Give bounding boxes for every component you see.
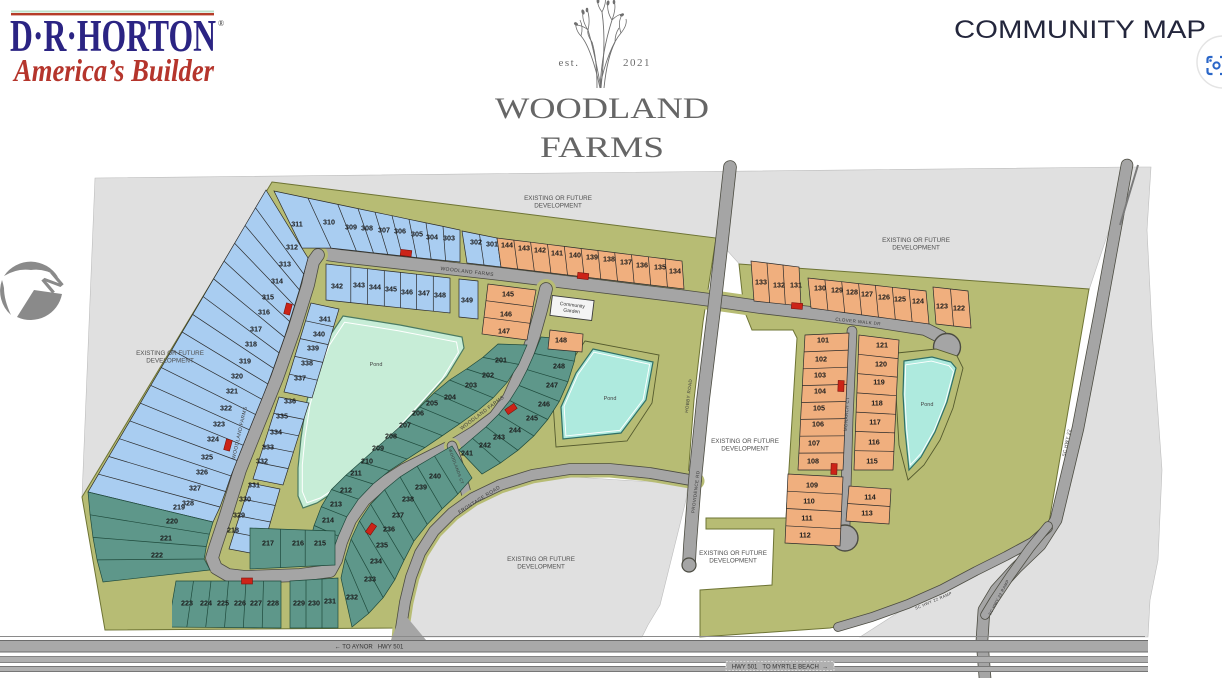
svg-text:330: 330	[239, 494, 251, 503]
svg-text:234: 234	[370, 556, 382, 565]
svg-text:224: 224	[200, 598, 212, 607]
svg-text:103: 103	[814, 370, 826, 379]
svg-text:147: 147	[498, 326, 510, 335]
svg-text:227: 227	[250, 598, 262, 607]
svg-text:118: 118	[871, 398, 883, 407]
svg-text:201: 201	[495, 355, 507, 364]
svg-text:110: 110	[803, 496, 815, 505]
svg-text:226: 226	[234, 598, 246, 607]
svg-text:136: 136	[636, 260, 648, 269]
svg-text:324: 324	[207, 434, 219, 443]
svg-text:225: 225	[217, 598, 229, 607]
svg-text:109: 109	[806, 480, 818, 489]
svg-text:244: 244	[509, 425, 521, 434]
svg-text:338: 338	[301, 358, 313, 367]
svg-text:125: 125	[894, 294, 906, 303]
svg-text:119: 119	[873, 377, 885, 386]
svg-text:242: 242	[479, 440, 491, 449]
svg-text:347: 347	[418, 288, 430, 297]
svg-text:336: 336	[284, 396, 296, 405]
svg-text:323: 323	[213, 419, 225, 428]
svg-text:333: 333	[262, 442, 274, 451]
svg-text:207: 207	[399, 420, 411, 429]
svg-text:220: 220	[166, 516, 178, 525]
svg-text:223: 223	[181, 598, 193, 607]
svg-text:317: 317	[250, 324, 262, 333]
svg-text:240: 240	[429, 471, 441, 480]
svg-text:107: 107	[808, 438, 820, 447]
svg-text:123: 123	[936, 301, 948, 310]
svg-text:329: 329	[233, 510, 245, 519]
svg-text:321: 321	[226, 386, 238, 395]
svg-text:326: 326	[196, 467, 208, 476]
svg-text:Pond: Pond	[604, 396, 617, 402]
svg-text:111: 111	[801, 513, 812, 522]
svg-text:HWY 501 TO MYRTLE BEACH →: HWY 501 TO MYRTLE BEACH →	[732, 665, 828, 671]
svg-text:America’s Builder: America’s Builder	[12, 52, 214, 88]
svg-text:203: 203	[465, 380, 477, 389]
svg-text:218: 218	[227, 525, 239, 534]
svg-text:108: 108	[807, 456, 819, 465]
svg-text:232: 232	[346, 592, 358, 601]
svg-text:146: 146	[500, 309, 512, 318]
svg-text:2021: 2021	[623, 57, 651, 69]
svg-text:245: 245	[526, 413, 538, 422]
svg-text:148: 148	[555, 335, 567, 344]
svg-text:131: 131	[790, 280, 802, 289]
svg-text:144: 144	[501, 240, 513, 249]
svg-text:345: 345	[385, 284, 397, 293]
svg-text:303: 303	[443, 233, 455, 242]
svg-text:®: ®	[218, 19, 224, 28]
svg-text:331: 331	[248, 480, 260, 489]
svg-text:230: 230	[308, 598, 320, 607]
svg-text:222: 222	[151, 550, 163, 559]
svg-text:134: 134	[669, 266, 681, 275]
svg-text:126: 126	[878, 292, 890, 301]
svg-text:EXISTING OR FUTUREDEVELOPMENT: EXISTING OR FUTUREDEVELOPMENT	[524, 195, 592, 210]
svg-text:138: 138	[603, 254, 615, 263]
svg-text:121: 121	[876, 340, 888, 349]
svg-text:113: 113	[861, 508, 873, 517]
svg-text:344: 344	[369, 282, 381, 291]
svg-text:129: 129	[831, 285, 843, 294]
svg-text:247: 247	[546, 380, 558, 389]
svg-text:239: 239	[415, 482, 427, 491]
svg-text:102: 102	[815, 354, 827, 363]
svg-text:309: 309	[345, 222, 357, 231]
svg-text:314: 314	[271, 276, 283, 285]
svg-text:120: 120	[875, 359, 887, 368]
svg-text:320: 320	[231, 371, 243, 380]
svg-text:124: 124	[912, 296, 924, 305]
svg-text:137: 137	[620, 257, 632, 266]
svg-text:310: 310	[323, 217, 335, 226]
svg-text:210: 210	[361, 456, 373, 465]
svg-text:EXISTING OR FUTUREDEVELOPMENT: EXISTING OR FUTUREDEVELOPMENT	[882, 237, 950, 252]
svg-text:141: 141	[551, 248, 563, 257]
svg-text:221: 221	[160, 533, 172, 542]
svg-text:311: 311	[291, 219, 303, 228]
svg-text:342: 342	[331, 281, 343, 290]
svg-text:202: 202	[482, 370, 494, 379]
svg-text:205: 205	[426, 398, 438, 407]
svg-text:335: 335	[276, 411, 288, 420]
svg-text:EXISTING OR FUTUREDEVELOPMENT: EXISTING OR FUTUREDEVELOPMENT	[711, 438, 779, 453]
svg-text:FARMS: FARMS	[540, 131, 664, 164]
svg-text:243: 243	[493, 432, 505, 441]
svg-text:313: 313	[279, 259, 291, 268]
svg-text:346: 346	[401, 287, 413, 296]
svg-text:104: 104	[814, 386, 826, 395]
svg-text:235: 235	[376, 540, 388, 549]
svg-text:116: 116	[868, 437, 880, 446]
svg-text:206: 206	[412, 408, 424, 417]
svg-text:319: 319	[239, 356, 251, 365]
svg-text:128: 128	[846, 287, 858, 296]
svg-text:106: 106	[812, 419, 824, 428]
svg-text:341: 341	[319, 314, 331, 323]
svg-text:325: 325	[201, 452, 213, 461]
svg-text:EXISTING OR FUTUREDEVELOPMENT: EXISTING OR FUTUREDEVELOPMENT	[699, 550, 767, 565]
svg-text:133: 133	[755, 277, 767, 286]
svg-text:101: 101	[817, 335, 829, 344]
svg-text:340: 340	[313, 329, 325, 338]
svg-text:238: 238	[402, 494, 414, 503]
svg-text:332: 332	[256, 456, 268, 465]
svg-text:est.: est.	[559, 57, 580, 69]
svg-text:EXISTING OR FUTUREDEVELOPMENT: EXISTING OR FUTUREDEVELOPMENT	[507, 556, 575, 571]
svg-text:EXISTING OR FUTUREDEVELOPMENT: EXISTING OR FUTUREDEVELOPMENT	[136, 350, 204, 365]
svg-text:112: 112	[799, 530, 811, 539]
svg-text:246: 246	[538, 399, 550, 408]
svg-text:115: 115	[866, 456, 878, 465]
svg-text:122: 122	[953, 303, 965, 312]
svg-text:248: 248	[553, 361, 565, 370]
svg-text:142: 142	[534, 245, 546, 254]
svg-text:312: 312	[286, 242, 298, 251]
svg-text:132: 132	[773, 280, 785, 289]
svg-text:316: 316	[258, 307, 270, 316]
svg-text:212: 212	[340, 485, 352, 494]
svg-text:105: 105	[813, 403, 825, 412]
svg-text:← TO AYNOR HWY 501: ← TO AYNOR HWY 501	[335, 645, 404, 651]
svg-text:135: 135	[654, 262, 666, 271]
svg-text:327: 327	[189, 483, 201, 492]
svg-text:233: 233	[364, 574, 376, 583]
svg-text:349: 349	[461, 295, 473, 304]
svg-text:219: 219	[173, 502, 185, 511]
svg-text:348: 348	[434, 290, 446, 299]
svg-text:209: 209	[372, 443, 384, 452]
svg-text:127: 127	[861, 289, 873, 298]
svg-text:306: 306	[394, 226, 406, 235]
svg-text:337: 337	[294, 373, 306, 382]
svg-text:307: 307	[378, 225, 390, 234]
svg-text:318: 318	[245, 339, 257, 348]
svg-text:139: 139	[586, 252, 598, 261]
svg-text:305: 305	[411, 229, 423, 238]
svg-text:204: 204	[444, 392, 456, 401]
svg-text:211: 211	[350, 468, 362, 477]
svg-text:231: 231	[324, 596, 336, 605]
svg-text:140: 140	[569, 250, 581, 259]
svg-text:213: 213	[330, 499, 342, 508]
svg-text:WOODLAND: WOODLAND	[495, 92, 709, 125]
svg-text:301: 301	[486, 239, 498, 248]
svg-text:143: 143	[518, 243, 530, 252]
svg-text:215: 215	[314, 538, 326, 547]
svg-text:236: 236	[383, 524, 395, 533]
svg-text:228: 228	[267, 598, 279, 607]
svg-text:214: 214	[322, 515, 334, 524]
svg-text:229: 229	[293, 598, 305, 607]
svg-text:334: 334	[270, 427, 282, 436]
svg-text:208: 208	[385, 431, 397, 440]
svg-text:117: 117	[869, 417, 881, 426]
svg-text:130: 130	[814, 283, 826, 292]
svg-text:302: 302	[470, 237, 482, 246]
svg-text:343: 343	[353, 280, 365, 289]
svg-text:114: 114	[864, 492, 876, 501]
svg-text:145: 145	[502, 289, 514, 298]
svg-text:241: 241	[461, 448, 473, 457]
svg-text:322: 322	[220, 403, 232, 412]
svg-text:339: 339	[307, 343, 319, 352]
svg-text:COMMUNITY MAP: COMMUNITY MAP	[954, 16, 1206, 44]
svg-text:304: 304	[426, 232, 438, 241]
svg-text:237: 237	[392, 510, 404, 519]
svg-text:308: 308	[361, 223, 373, 232]
svg-text:Pond: Pond	[921, 402, 934, 408]
svg-text:315: 315	[262, 292, 274, 301]
svg-text:216: 216	[292, 538, 304, 547]
svg-text:217: 217	[262, 538, 274, 547]
svg-text:Pond: Pond	[370, 362, 383, 368]
